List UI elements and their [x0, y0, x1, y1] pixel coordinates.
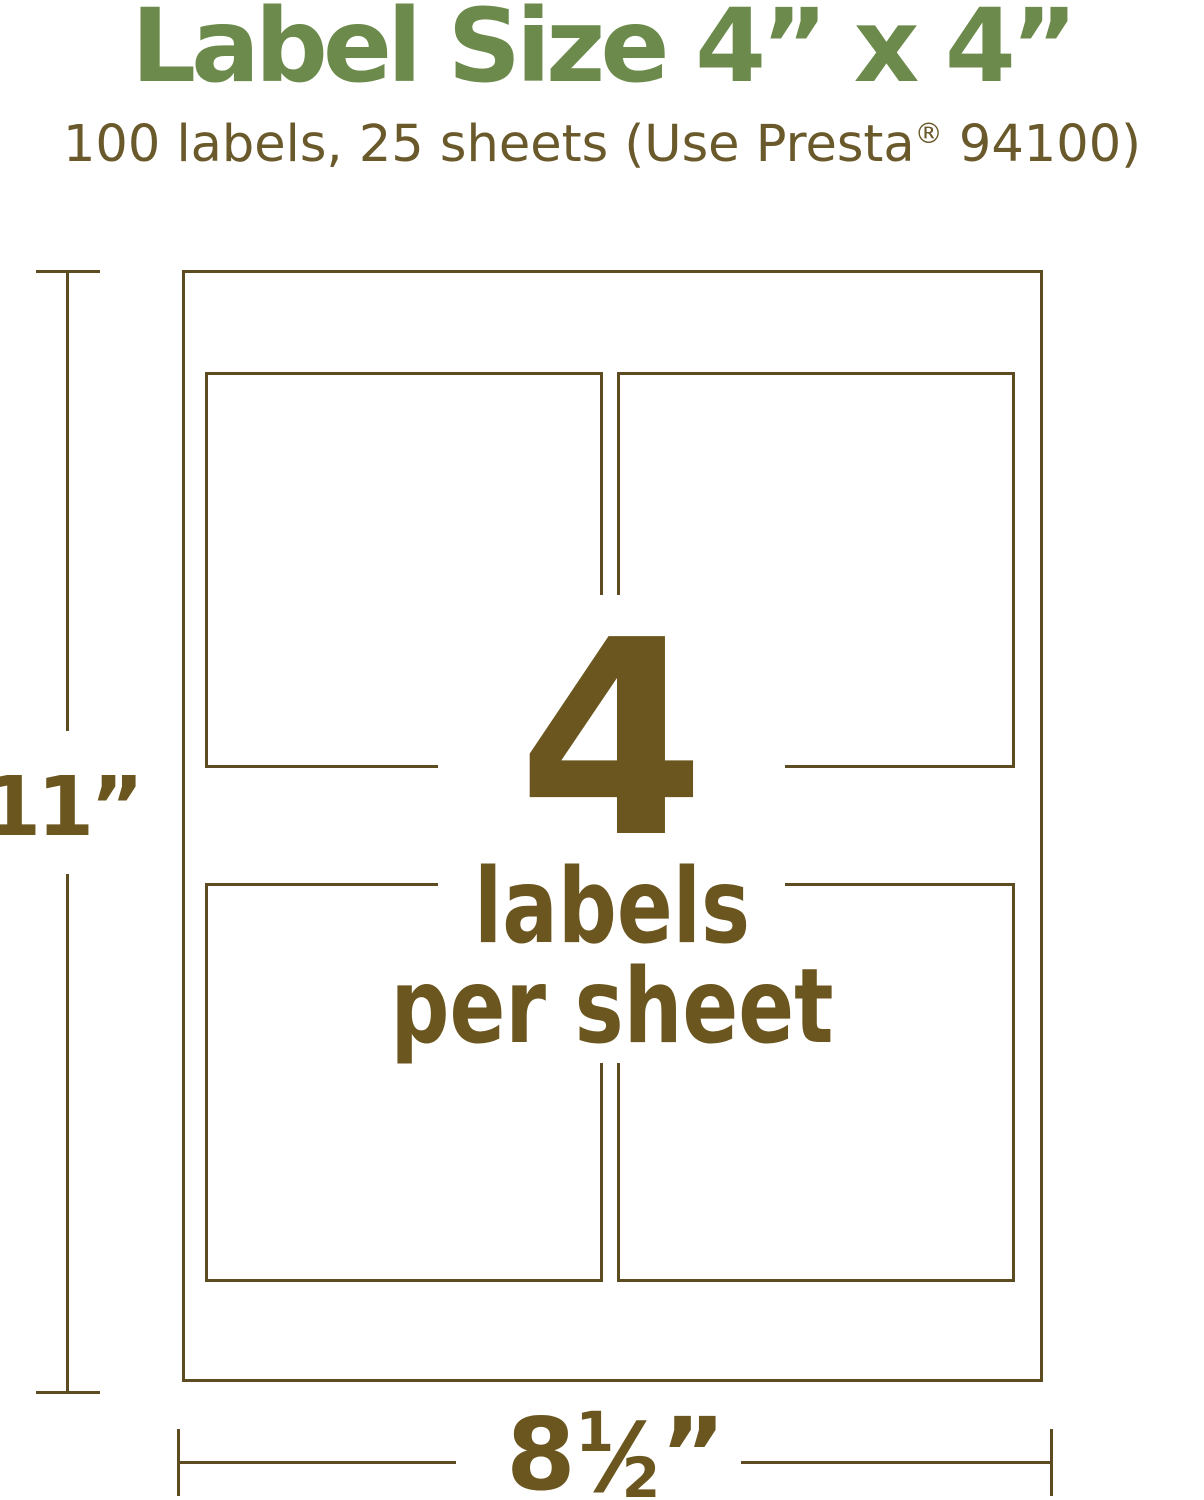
width-dimension-label: 81⁄2”: [456, 1402, 776, 1500]
caption-per-sheet: per sheet: [332, 952, 892, 1062]
page-title: Label Size 4” x 4”: [0, 0, 1204, 98]
width-inch-mark: ”: [660, 1396, 726, 1500]
registered-trademark-symbol: ®: [915, 117, 943, 150]
height-dimension-line-lower: [66, 874, 69, 1394]
height-dimension-label: 11”: [0, 771, 132, 843]
height-dimension-cap-bottom: [36, 1391, 100, 1394]
width-dimension-line-left: [177, 1461, 491, 1464]
width-fraction-slash: ⁄: [612, 1404, 622, 1500]
subtitle: 100 labels, 25 sheets (Use Presta® 94100…: [0, 112, 1204, 178]
labels-per-sheet-count: 4: [438, 614, 785, 864]
height-dimension-line-upper: [66, 270, 69, 731]
subtitle-part-number: 94100): [943, 115, 1141, 174]
width-fraction-numerator: 1: [576, 1400, 612, 1464]
subtitle-text: 100 labels, 25 sheets (Use Presta: [63, 115, 915, 174]
width-dimension-cap-right: [1050, 1429, 1053, 1496]
width-fraction-denominator: 2: [622, 1446, 660, 1500]
width-whole-number: 8: [506, 1396, 576, 1500]
label-sheet-spec-figure: Label Size 4” x 4” 100 labels, 25 sheets…: [0, 0, 1204, 1500]
caption-labels: labels: [332, 852, 892, 962]
width-dimension-line-right: [741, 1461, 1053, 1464]
